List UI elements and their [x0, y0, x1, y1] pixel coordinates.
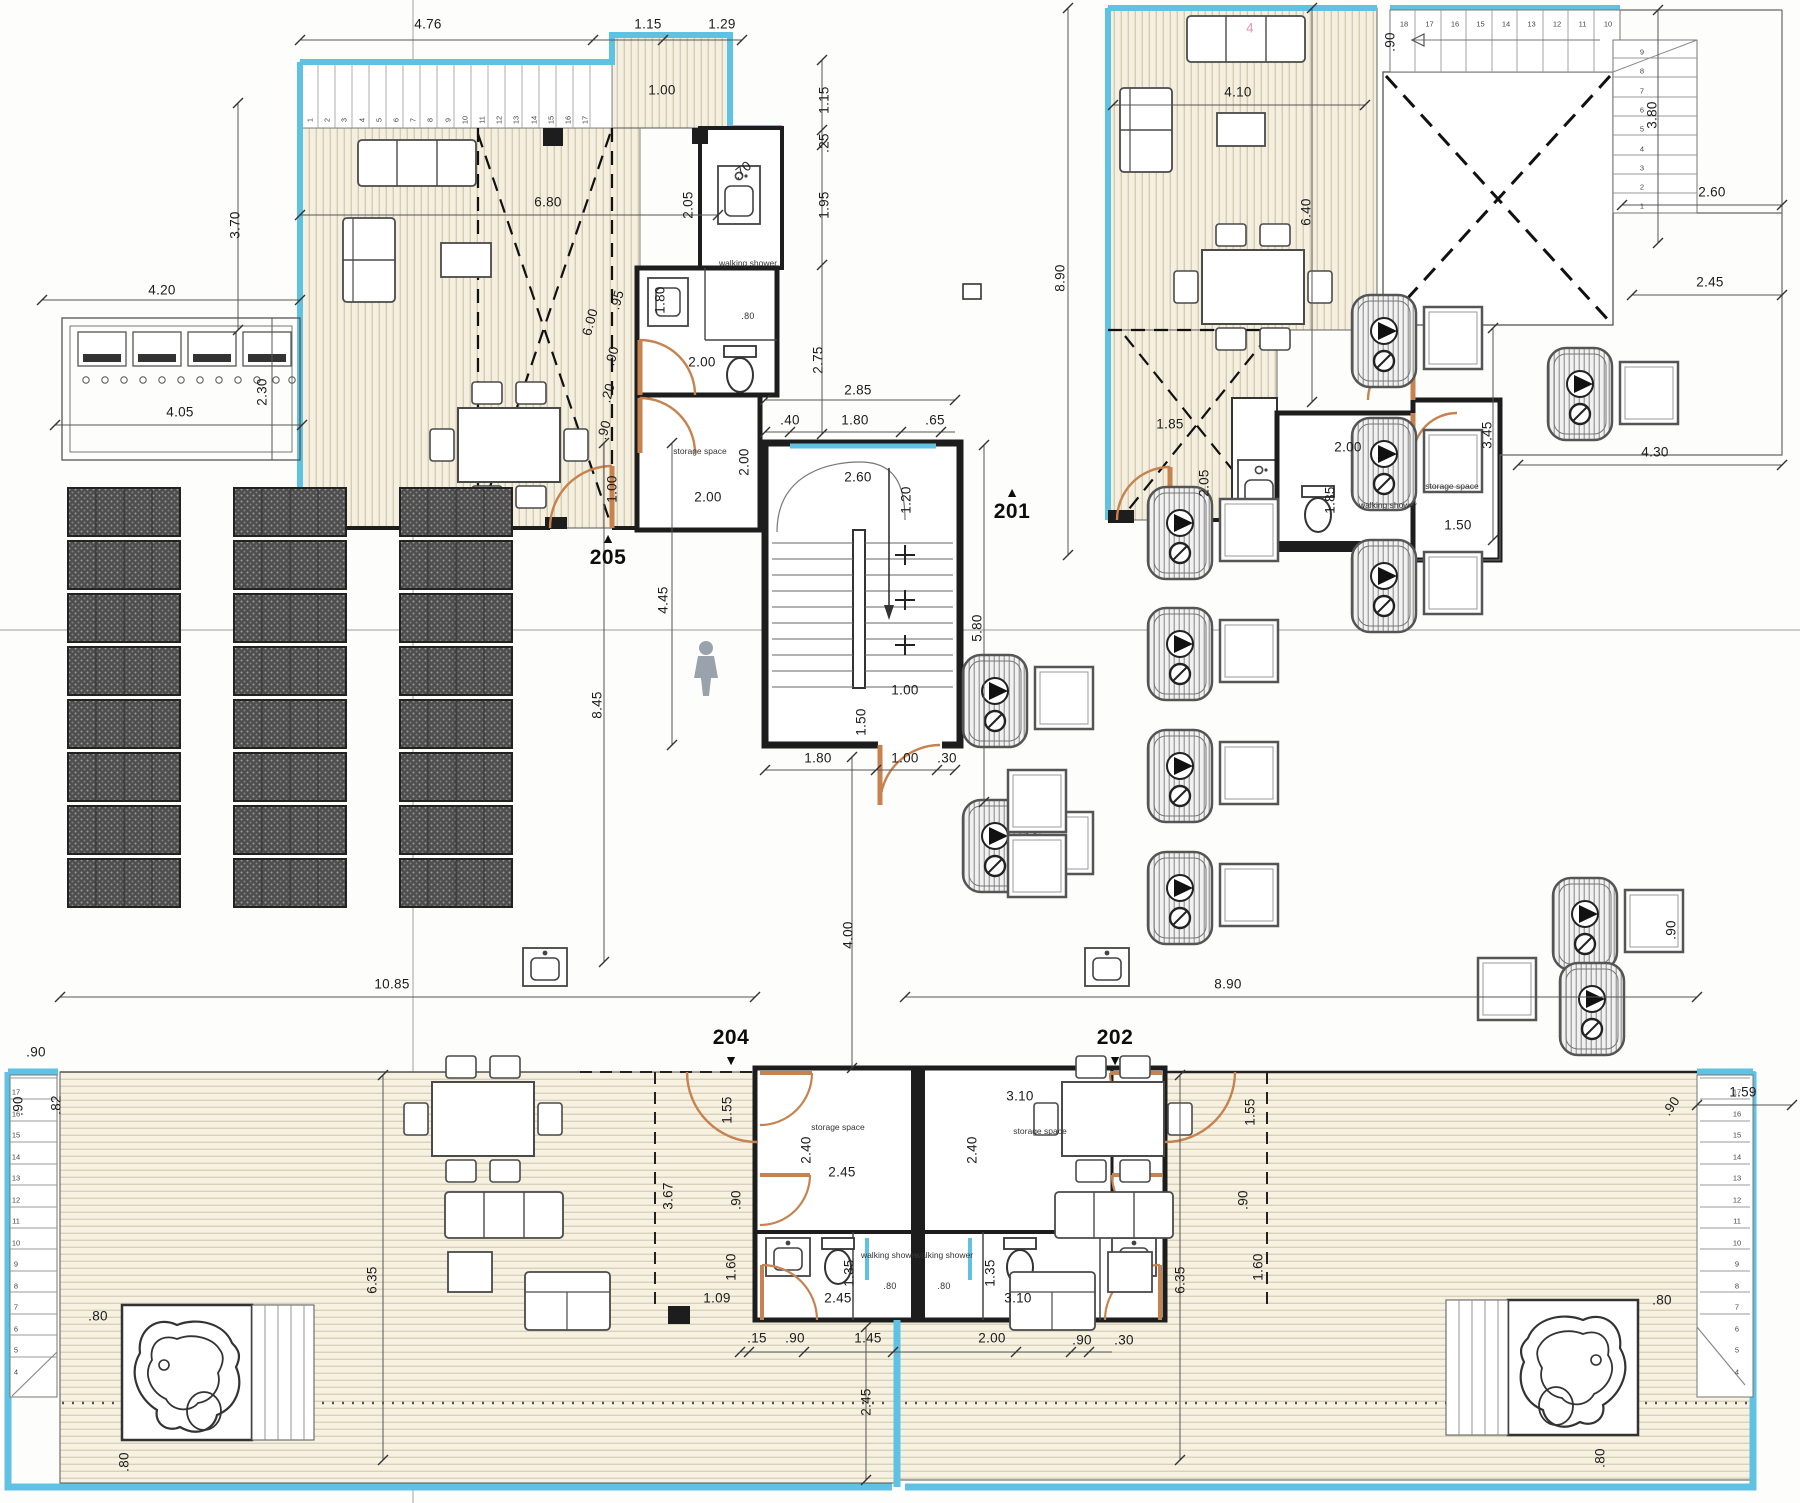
- stair-tread-number: 12: [1733, 1195, 1741, 1204]
- stair-tread-number: 5: [1735, 1346, 1739, 1355]
- stair-tread-number: 11: [1579, 20, 1587, 29]
- stair-tread-number: 13: [12, 1174, 20, 1183]
- dimension-label: .30: [1114, 1333, 1134, 1348]
- dimension-label: 8.90: [1053, 264, 1068, 291]
- stair-tread-number: 9: [1640, 48, 1644, 57]
- dimension-label: 2.30: [255, 378, 270, 405]
- dimension-label: 1.55: [720, 1096, 735, 1123]
- stair-tread-number: 10: [1604, 20, 1612, 29]
- label-layer: 4.761.151.291.001.15.251.952.75.702.056.…: [0, 0, 1800, 1503]
- dimension-label: .80: [117, 1452, 132, 1472]
- stair-tread-number: 2: [1640, 183, 1644, 192]
- dimension-label: 1.15: [634, 17, 661, 32]
- stair-tread-number: 6: [1640, 105, 1644, 114]
- dimension-label: 3.80: [1645, 101, 1660, 128]
- stair-tread-number: 5: [14, 1346, 18, 1355]
- dimension-label: 10.85: [374, 977, 409, 992]
- stair-tread-number: 12: [12, 1195, 20, 1204]
- dimension-label: 3.67: [661, 1182, 676, 1209]
- stair-tread-number: 2: [323, 118, 332, 122]
- dimension-label: 2.45: [1696, 275, 1723, 290]
- stair-tread-number: 7: [1735, 1303, 1739, 1312]
- stair-tread-number: 17: [1733, 1088, 1741, 1097]
- stair-tread-number: 4: [1735, 1367, 1739, 1376]
- dimension-label: 4.05: [166, 405, 193, 420]
- stair-tread-number: 5: [1640, 125, 1644, 134]
- dimension-label: 1.00: [891, 751, 918, 766]
- dimension-label: 2.00: [694, 490, 721, 505]
- room-label: walking shower: [717, 259, 779, 269]
- dimension-label: 1.60: [724, 1253, 739, 1280]
- dimension-label: 1.20: [899, 486, 914, 513]
- dimension-label: .70: [730, 158, 755, 182]
- room-label: walking shower: [859, 1251, 921, 1261]
- stair-tread-number: 14: [12, 1152, 20, 1161]
- dimension-label: 8.45: [590, 691, 605, 718]
- dimension-label: 1.80: [653, 286, 668, 313]
- dimension-label: .90: [1664, 920, 1679, 940]
- dimension-label: 1.00: [648, 83, 675, 98]
- room-label: walking shower: [1357, 501, 1419, 511]
- stair-tread-number: 17: [1425, 20, 1433, 29]
- stair-tread-number: 17: [12, 1088, 20, 1097]
- unit-marker-arrow: ▼: [1108, 1052, 1122, 1068]
- dimension-label: 6.35: [1173, 1266, 1188, 1293]
- room-label: storage space: [1009, 1127, 1071, 1137]
- dimension-label: .30: [937, 751, 957, 766]
- stair-tread-number: 9: [1735, 1260, 1739, 1269]
- dimension-label: 1.45: [854, 1331, 881, 1346]
- stair-tread-number: 5: [374, 118, 383, 122]
- stair-tread-number: 14: [1733, 1152, 1741, 1161]
- dimension-label: .25: [817, 133, 832, 153]
- dimension-label: 1.50: [854, 708, 869, 735]
- stair-tread-number: 15: [1476, 20, 1484, 29]
- dimension-label: .90: [729, 1190, 744, 1210]
- stair-tread-number: 16: [1733, 1109, 1741, 1118]
- stair-tread-number: 6: [1735, 1324, 1739, 1333]
- dimension-label: .95: [607, 289, 627, 312]
- dimension-label: .80: [883, 1281, 896, 1291]
- dimension-label: .80: [937, 1281, 950, 1291]
- dimension-label: 4.30: [1641, 445, 1668, 460]
- stair-tread-number: 15: [546, 116, 555, 124]
- stair-tread-number: 10: [460, 116, 469, 124]
- dimension-label: 2.40: [799, 1136, 814, 1163]
- dimension-label: .90: [26, 1045, 46, 1060]
- dimension-label: 2.45: [828, 1165, 855, 1180]
- stair-tread-number: 11: [478, 116, 487, 124]
- room-label: walking shower: [913, 1251, 975, 1261]
- stair-tread-number: 8: [1640, 67, 1644, 76]
- dimension-label: 8.90: [1214, 977, 1241, 992]
- stair-tread-number: 8: [426, 118, 435, 122]
- dimension-label: 1.85: [1156, 417, 1183, 432]
- stair-tread-number: 9: [443, 118, 452, 122]
- dimension-label: 3.70: [228, 211, 243, 238]
- stair-tread-number: 9: [14, 1260, 18, 1269]
- stair-tread-number: 6: [392, 118, 401, 122]
- stair-tread-number: 16: [12, 1109, 20, 1118]
- dimension-label: 1.35: [842, 1259, 857, 1286]
- dimension-label: .82: [49, 1095, 64, 1115]
- dimension-label: .90: [785, 1331, 805, 1346]
- dimension-label: 2.75: [811, 346, 826, 373]
- dimension-label: 2.45: [824, 1291, 851, 1306]
- dimension-label: .20: [598, 382, 618, 405]
- dimension-label: .90: [1659, 1094, 1683, 1119]
- floor-plan-page: 4.761.151.291.001.15.251.952.75.702.056.…: [0, 0, 1800, 1503]
- dimension-label: 4: [1246, 21, 1254, 36]
- stair-tread-number: 15: [12, 1131, 20, 1140]
- dimension-label: 1.09: [703, 1291, 730, 1306]
- dimension-label: 3.45: [1480, 421, 1495, 448]
- stair-tread-number: 12: [1553, 20, 1561, 29]
- unit-marker: 205: [590, 546, 627, 570]
- dimension-label: 1.80: [804, 751, 831, 766]
- dimension-label: 2.45: [859, 1388, 874, 1415]
- dimension-label: 1.00: [605, 475, 620, 502]
- dimension-label: 4.20: [148, 283, 175, 298]
- stair-tread-number: 16: [1451, 20, 1459, 29]
- dimension-label: 1.80: [841, 413, 868, 428]
- stair-tread-number: 7: [1640, 86, 1644, 95]
- dimension-label: 1.55: [1243, 1098, 1258, 1125]
- stair-tread-number: 8: [14, 1281, 18, 1290]
- dimension-label: 2.60: [1698, 185, 1725, 200]
- stair-tread-number: 7: [14, 1303, 18, 1312]
- dimension-label: .80: [1593, 1448, 1608, 1468]
- stair-tread-number: 11: [1733, 1217, 1741, 1226]
- stair-tread-number: 1: [1640, 202, 1644, 211]
- room-label: storage space: [1421, 482, 1483, 492]
- dimension-label: 2.05: [681, 191, 696, 218]
- stair-tread-number: 17: [581, 116, 590, 124]
- unit-marker: 204: [713, 1026, 750, 1050]
- dimension-label: 1.95: [817, 191, 832, 218]
- dimension-label: .80: [88, 1309, 108, 1324]
- dimension-label: 6.80: [534, 195, 561, 210]
- dimension-label: 4.76: [414, 17, 441, 32]
- dimension-label: 2.00: [688, 355, 715, 370]
- dimension-label: .80: [1652, 1293, 1672, 1308]
- dimension-label: 4.10: [1224, 85, 1251, 100]
- stair-tread-number: 3: [1640, 163, 1644, 172]
- dimension-label: 2.00: [978, 1331, 1005, 1346]
- dimension-label: 2.60: [844, 470, 871, 485]
- unit-marker-arrow: ▼: [724, 1052, 738, 1068]
- dimension-label: 6.40: [1299, 198, 1314, 225]
- dimension-label: .90: [594, 419, 614, 442]
- dimension-label: .90: [1383, 32, 1398, 52]
- dimension-label: 6.00: [579, 307, 601, 337]
- dimension-label: 1.35: [983, 1259, 998, 1286]
- unit-marker: 202: [1097, 1026, 1134, 1050]
- stair-tread-number: 14: [1502, 20, 1510, 29]
- room-label: storage space: [807, 1123, 869, 1133]
- stair-tread-number: 13: [1733, 1174, 1741, 1183]
- dimension-label: .15: [747, 1331, 767, 1346]
- stair-tread-number: 6: [14, 1324, 18, 1333]
- stair-tread-number: 8: [1735, 1281, 1739, 1290]
- stair-tread-number: 4: [357, 118, 366, 122]
- dimension-label: 2.40: [965, 1136, 980, 1163]
- dimension-label: 1.29: [708, 17, 735, 32]
- stair-tread-number: 1: [306, 118, 315, 122]
- stair-tread-number: 10: [1733, 1238, 1741, 1247]
- stair-tread-number: 7: [409, 118, 418, 122]
- dimension-label: 2.85: [844, 383, 871, 398]
- stair-tread-number: 4: [14, 1367, 18, 1376]
- dimension-label: 1.15: [817, 86, 832, 113]
- stair-tread-number: 16: [564, 116, 573, 124]
- dimension-label: 2.00: [1334, 440, 1361, 455]
- dimension-label: .65: [925, 413, 945, 428]
- dimension-label: 6.35: [365, 1266, 380, 1293]
- dimension-label: .80: [741, 311, 754, 321]
- dimension-label: 4.00: [841, 921, 856, 948]
- stair-tread-number: 18: [1400, 20, 1408, 29]
- stair-tread-number: 10: [12, 1238, 20, 1247]
- stair-tread-number: 12: [495, 116, 504, 124]
- stair-tread-number: 13: [1527, 20, 1535, 29]
- dimension-label: 2.05: [1197, 469, 1212, 496]
- dimension-label: .90: [1236, 1190, 1251, 1210]
- dimension-label: 1.85: [1323, 486, 1338, 513]
- stair-tread-number: 13: [512, 116, 521, 124]
- stair-tread-number: 15: [1733, 1131, 1741, 1140]
- dimension-label: .90: [602, 345, 622, 368]
- room-label: storage space: [669, 447, 731, 457]
- stair-tread-number: 14: [529, 116, 538, 124]
- unit-marker-arrow: ▲: [601, 530, 615, 546]
- unit-marker-arrow: ▲: [1005, 484, 1019, 500]
- dimension-label: 1.50: [1444, 518, 1471, 533]
- dimension-label: .40: [780, 413, 800, 428]
- dimension-label: 1.60: [1251, 1253, 1266, 1280]
- dimension-label: 2.00: [737, 448, 752, 475]
- dimension-label: .90: [1072, 1333, 1092, 1348]
- unit-marker: 201: [994, 500, 1031, 524]
- dimension-label: 4.45: [656, 586, 671, 613]
- stair-tread-number: 11: [12, 1217, 20, 1226]
- dimension-label: 3.10: [1006, 1089, 1033, 1104]
- stair-tread-number: 3: [340, 118, 349, 122]
- stair-tread-number: 4: [1640, 144, 1644, 153]
- dimension-label: 1.00: [891, 683, 918, 698]
- dimension-label: 3.10: [1004, 1291, 1031, 1306]
- dimension-label: 5.80: [970, 614, 985, 641]
